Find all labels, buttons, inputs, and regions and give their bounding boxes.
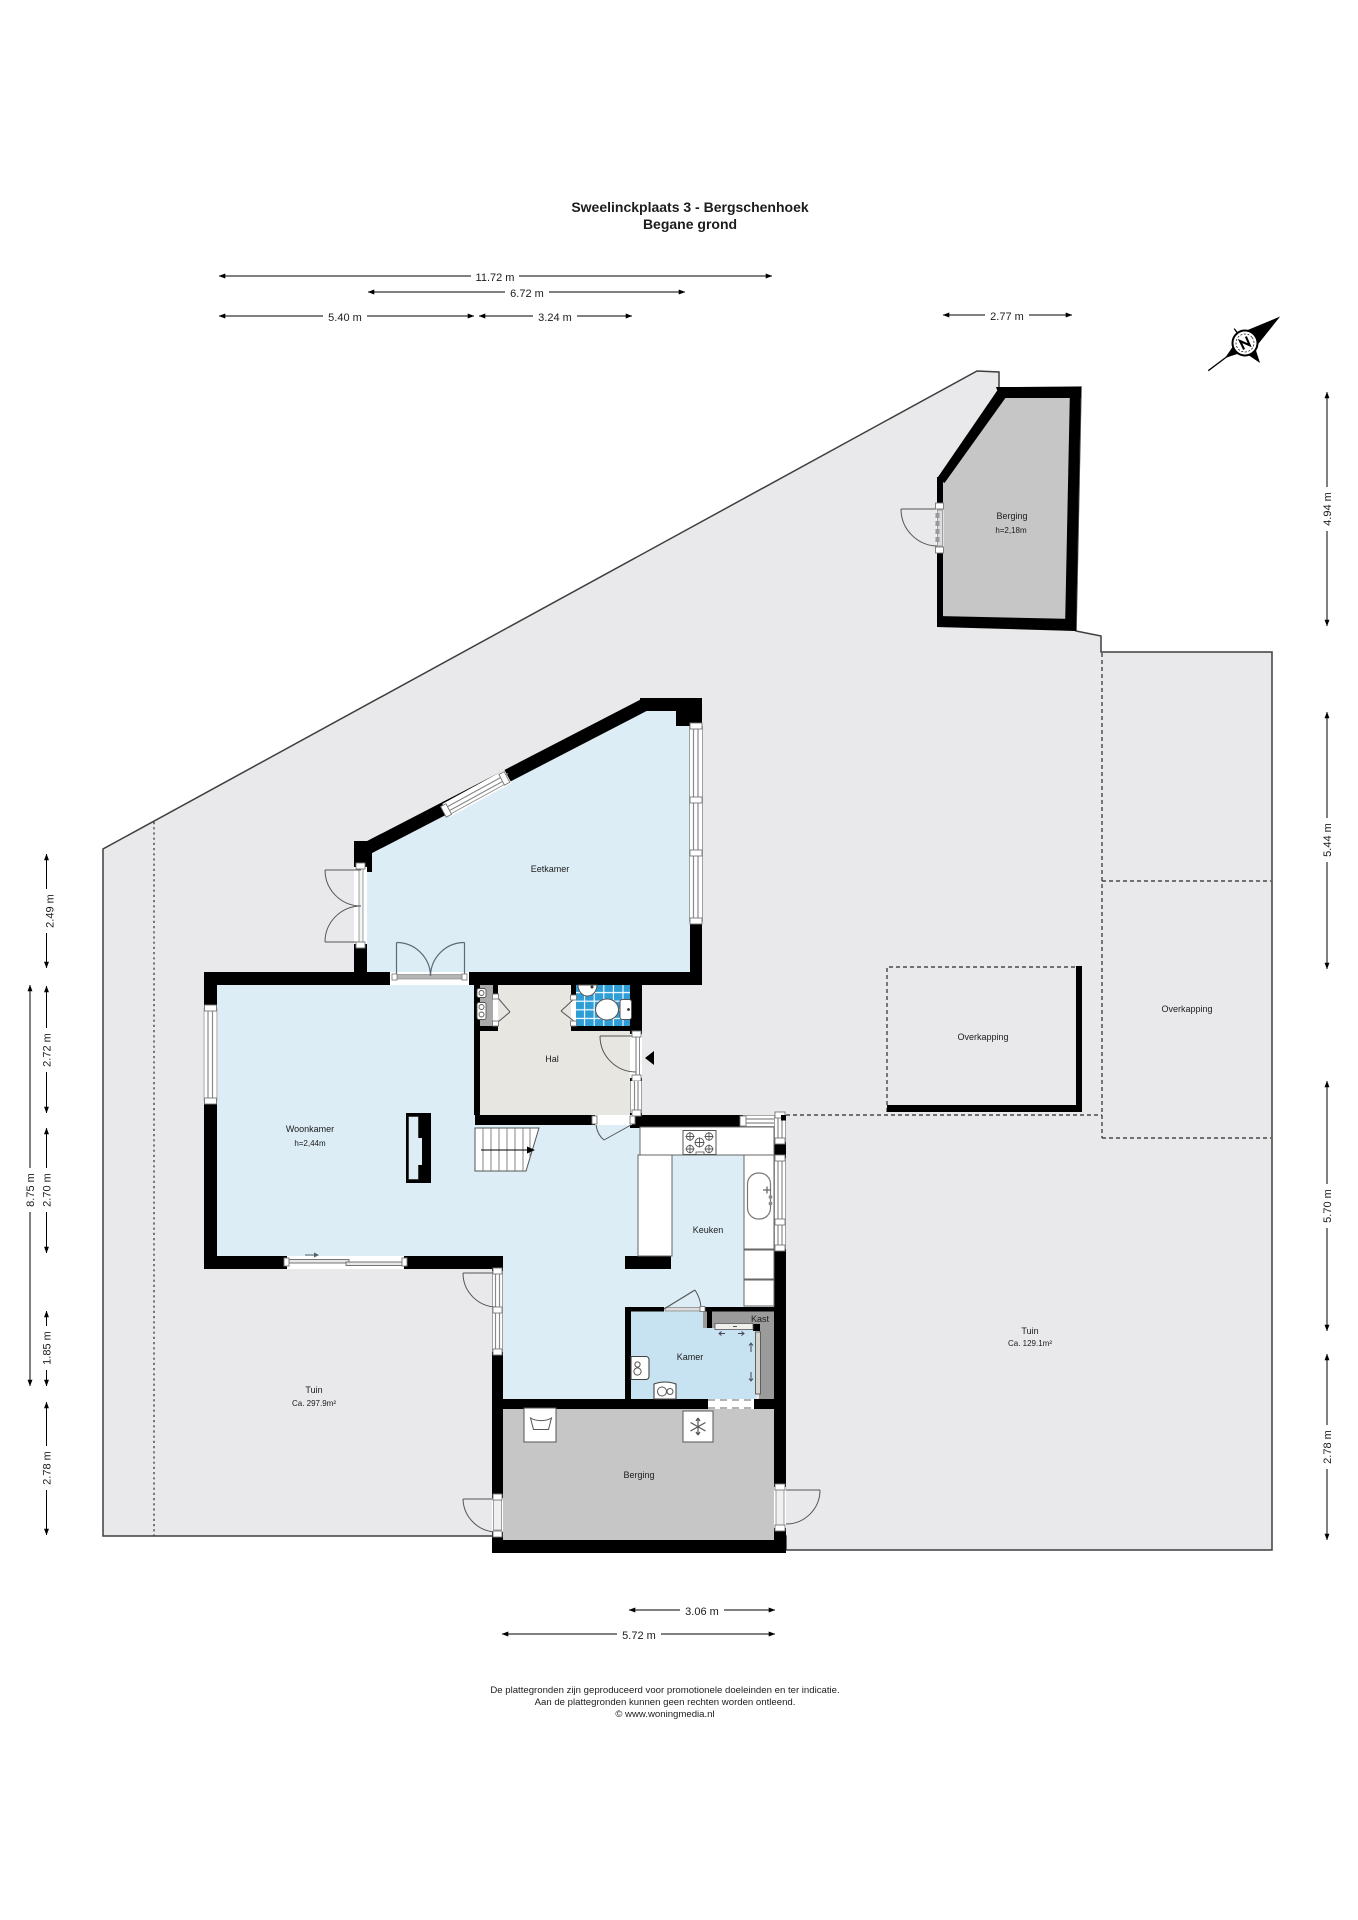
- svg-text:Eetkamer: Eetkamer: [531, 864, 570, 874]
- svg-text:h=2,18m: h=2,18m: [995, 526, 1027, 535]
- svg-text:Ca. 297.9m²: Ca. 297.9m²: [292, 1399, 336, 1408]
- svg-text:Tuin: Tuin: [305, 1385, 322, 1395]
- svg-text:2.72 m: 2.72 m: [42, 1033, 54, 1067]
- svg-text:Begane grond: Begane grond: [643, 216, 737, 232]
- svg-text:5.40 m: 5.40 m: [328, 312, 362, 324]
- svg-text:Overkapping: Overkapping: [957, 1032, 1008, 1042]
- svg-text:Ca. 129.1m²: Ca. 129.1m²: [1008, 1339, 1052, 1348]
- svg-text:h=2,44m: h=2,44m: [294, 1139, 326, 1148]
- svg-text:2.49 m: 2.49 m: [44, 894, 56, 928]
- svg-text:© www.woningmedia.nl: © www.woningmedia.nl: [615, 1709, 714, 1720]
- svg-text:2.78 m: 2.78 m: [1322, 1430, 1334, 1464]
- svg-text:3.06 m: 3.06 m: [685, 1606, 719, 1618]
- svg-text:Sweelinckplaats 3 - Bergschenh: Sweelinckplaats 3 - Bergschenhoek: [571, 199, 809, 215]
- svg-text:Keuken: Keuken: [693, 1225, 724, 1235]
- svg-text:Kast: Kast: [751, 1314, 770, 1324]
- svg-text:2.78 m: 2.78 m: [42, 1451, 54, 1485]
- svg-text:11.72 m: 11.72 m: [476, 272, 515, 284]
- svg-text:2.70 m: 2.70 m: [42, 1173, 54, 1207]
- svg-text:5.72 m: 5.72 m: [622, 1630, 656, 1642]
- svg-text:Kamer: Kamer: [677, 1352, 704, 1362]
- svg-text:Aan de plattegronden kunnen ge: Aan de plattegronden kunnen geen rechten…: [535, 1697, 796, 1708]
- svg-text:Berging: Berging: [623, 1470, 654, 1480]
- svg-text:4.94 m: 4.94 m: [1322, 492, 1334, 526]
- svg-text:5.70 m: 5.70 m: [1322, 1189, 1334, 1223]
- svg-text:Woonkamer: Woonkamer: [286, 1124, 334, 1134]
- svg-text:8.75 m: 8.75 m: [25, 1173, 37, 1207]
- svg-text:6.72 m: 6.72 m: [510, 288, 544, 300]
- svg-text:Tuin: Tuin: [1021, 1326, 1038, 1336]
- svg-text:1.85 m: 1.85 m: [42, 1331, 54, 1365]
- svg-text:Hal: Hal: [545, 1054, 559, 1064]
- svg-text:5.44 m: 5.44 m: [1322, 823, 1334, 857]
- svg-text:3.24 m: 3.24 m: [538, 312, 572, 324]
- svg-text:Berging: Berging: [996, 511, 1027, 521]
- svg-text:De plattegronden zijn geproduc: De plattegronden zijn geproduceerd voor …: [490, 1685, 839, 1696]
- svg-text:Overkapping: Overkapping: [1161, 1004, 1212, 1014]
- svg-text:2.77 m: 2.77 m: [990, 311, 1024, 323]
